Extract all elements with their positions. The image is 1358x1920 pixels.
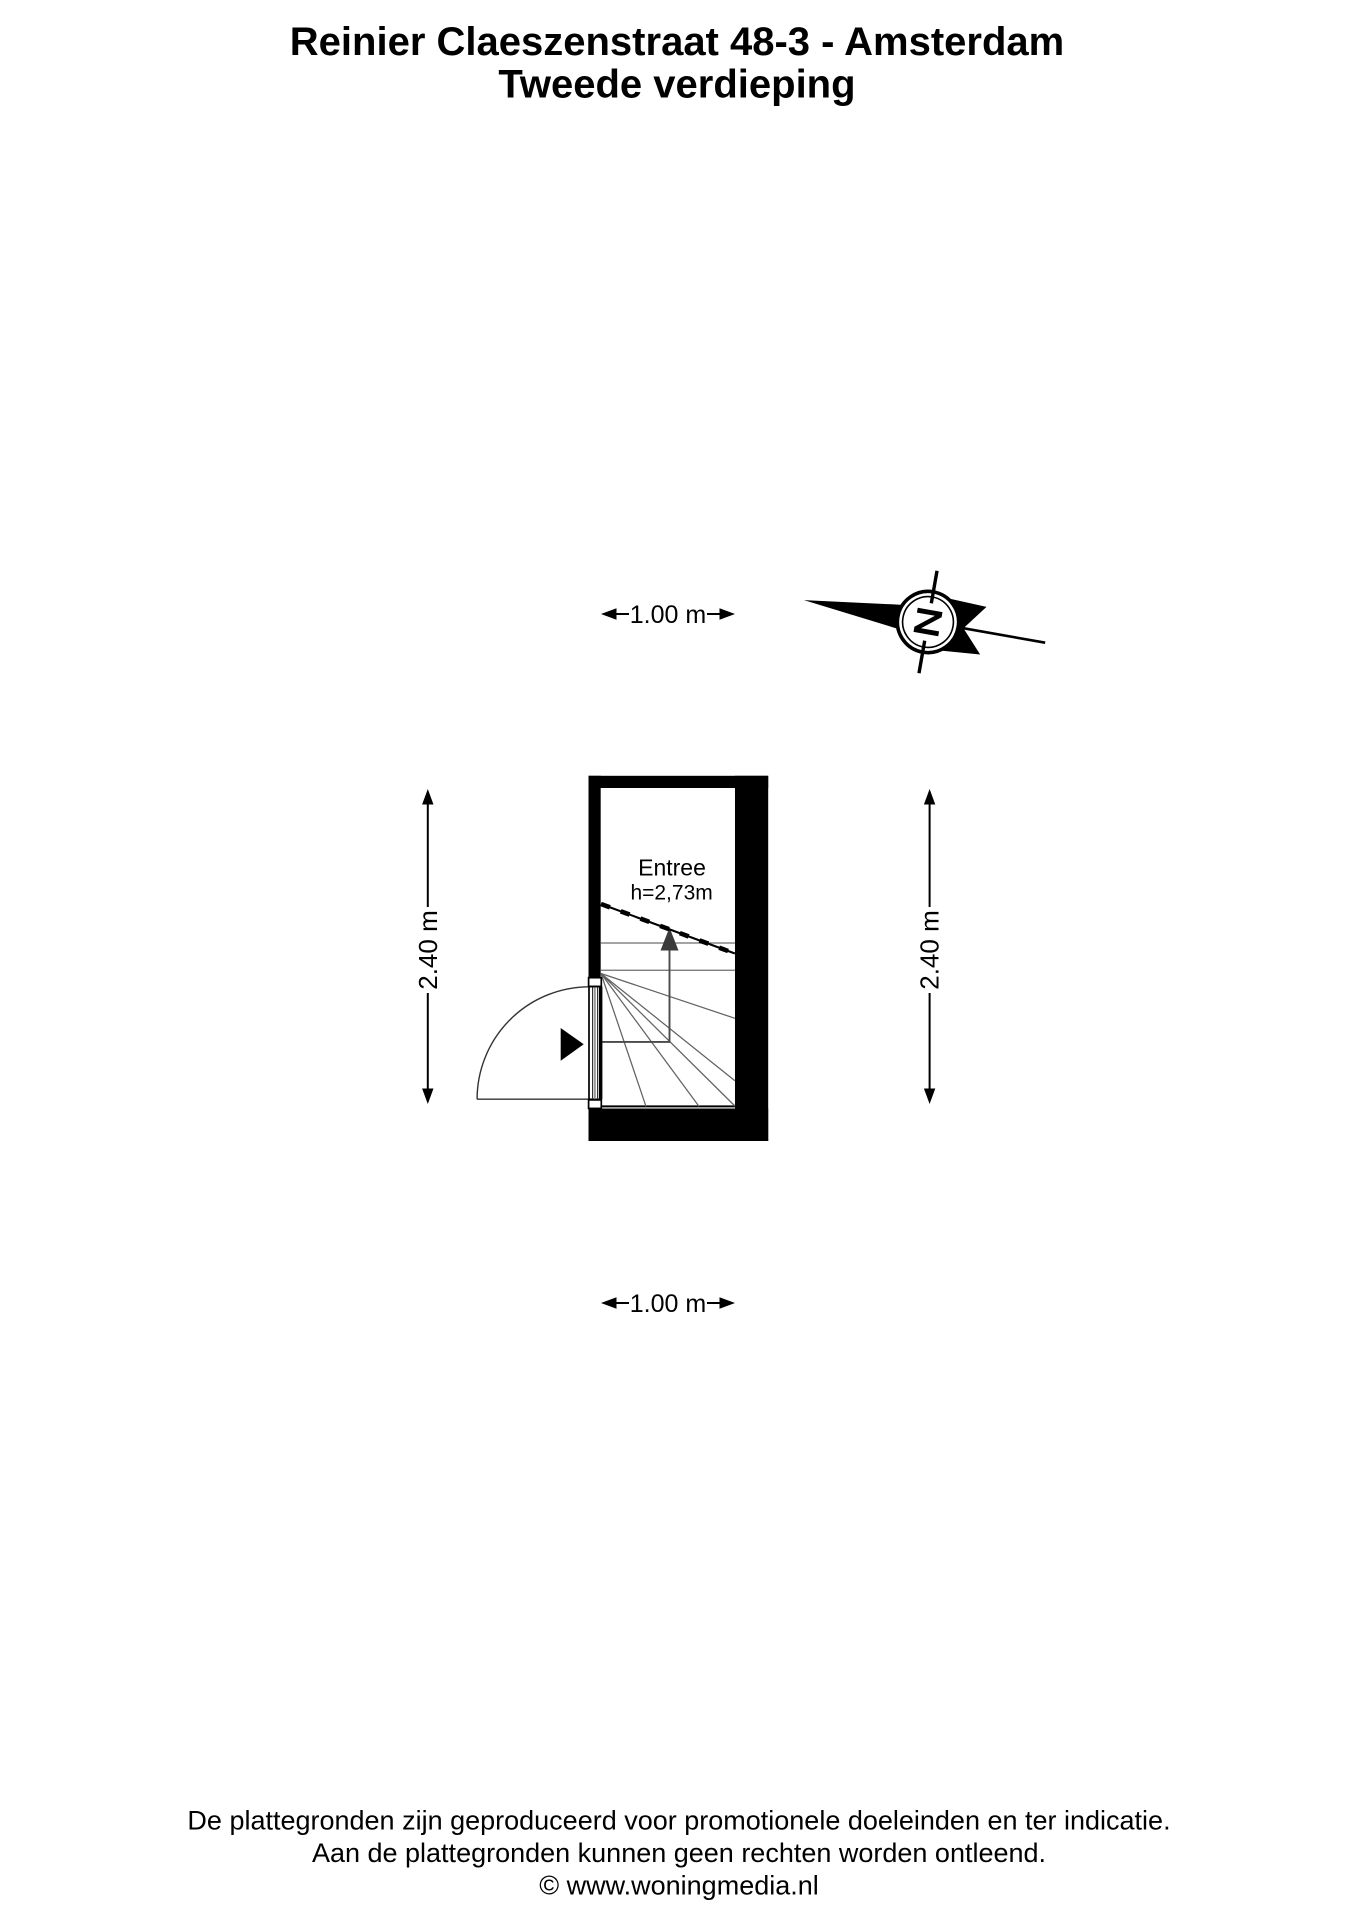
svg-text:Entree: Entree: [638, 854, 706, 880]
svg-text:Reinier Claeszenstraat 48-3 -: Reinier Claeszenstraat 48-3 - Amsterdam: [290, 20, 1064, 64]
svg-text:Aan de plattegronden kunnen ge: Aan de plattegronden kunnen geen rechten…: [312, 1838, 1046, 1868]
svg-text:h=2,73m: h=2,73m: [630, 882, 712, 905]
svg-text:Tweede verdieping: Tweede verdieping: [498, 63, 855, 107]
svg-text:2.40 m: 2.40 m: [413, 910, 443, 990]
svg-text:1.00 m: 1.00 m: [630, 1290, 706, 1318]
svg-text:De plattegronden zijn geproduc: De plattegronden zijn geproduceerd voor …: [187, 1806, 1170, 1836]
svg-text:2.40 m: 2.40 m: [915, 910, 945, 990]
svg-text:© www.woningmedia.nl: © www.woningmedia.nl: [539, 1870, 819, 1900]
svg-text:1.00 m: 1.00 m: [630, 601, 706, 629]
